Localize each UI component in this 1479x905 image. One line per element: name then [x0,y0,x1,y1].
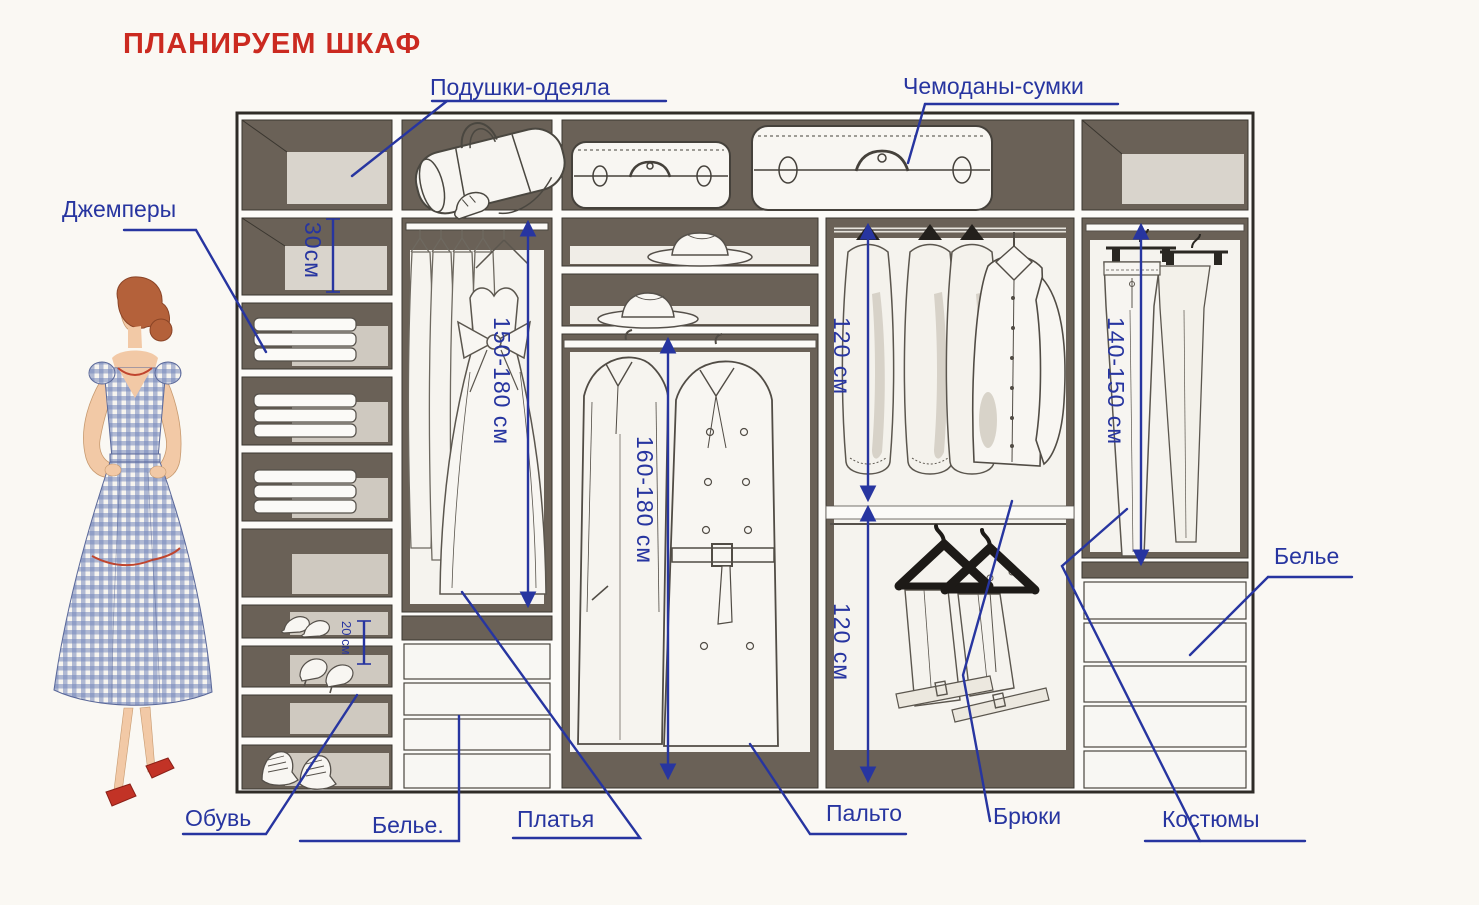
linen-drawers-right-drawers [1084,582,1246,788]
coat-rod [564,340,816,348]
measure-150-180: 150-180 см [488,317,515,445]
callout-trousers: Брюки [993,803,1061,830]
callout-dresses: Платья [517,806,594,833]
suitcase-small [572,142,730,208]
measure-140-150: 140-150 см [1102,317,1129,445]
suitcase-large [752,126,992,210]
page-title: ПЛАНИРУЕМ ШКАФ [123,28,421,61]
callout-sweaters: Джемперы [62,196,176,223]
callout-suits: Костюмы [1162,806,1260,833]
callout-pillows: Подушки-одеяла [430,74,610,101]
callout-coats: Пальто [826,800,902,827]
measure-30cm: 30см [299,222,326,279]
callout-linen-right: Белье [1274,543,1339,570]
measure-120-top: 120 см [828,317,855,395]
callout-linen-left: Белье. [372,812,444,839]
woman-figure [54,277,212,806]
dress-rod [406,223,548,230]
wardrobe-planning-diagram: ПЛАНИРУЕМ ШКАФ Подушки-одеяла Чемоданы-с… [0,0,1479,905]
diagram-artwork [0,0,1479,905]
callout-suitcases: Чемоданы-сумки [903,73,1084,100]
callout-shoes: Обувь [185,805,251,832]
measure-120-bottom: 120 см [828,603,855,681]
measure-20cm: 20 см [339,621,354,655]
trench-coats [578,330,778,746]
suit-rod [1086,224,1244,231]
measure-160-180: 160-180 см [631,436,658,564]
